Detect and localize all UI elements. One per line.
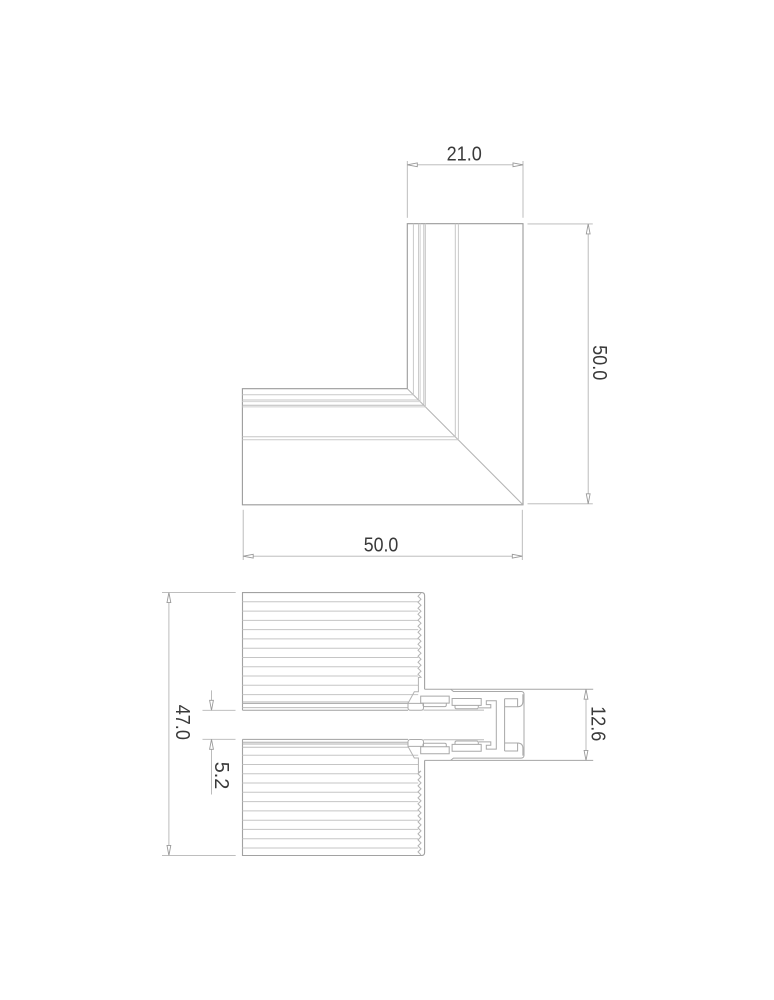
svg-text:50.0: 50.0	[588, 345, 610, 380]
svg-text:12.6: 12.6	[586, 706, 608, 741]
svg-text:5.2: 5.2	[210, 762, 232, 790]
svg-text:47.0: 47.0	[171, 705, 193, 740]
svg-text:21.0: 21.0	[447, 143, 482, 165]
svg-text:50.0: 50.0	[364, 534, 399, 556]
